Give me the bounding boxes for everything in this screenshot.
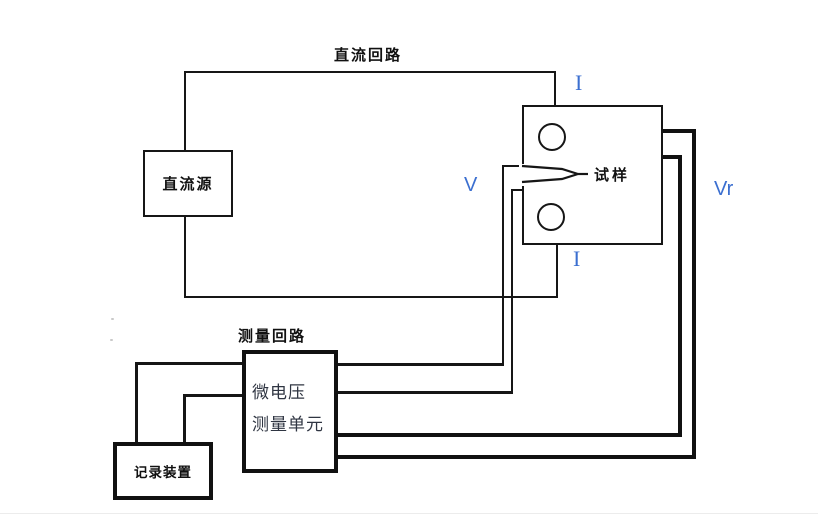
wire-vr-inner-to-unit (337, 433, 682, 437)
wire-vr-inner-vertical (678, 155, 682, 437)
wire-dc-source-bottom-vertical (184, 215, 186, 298)
specimen-label: 试样 (594, 164, 630, 185)
measure-loop-title: 测量回路 (238, 325, 306, 346)
wire-v-lower-probe-vertical (511, 189, 513, 394)
wire-vr-outer-to-unit (337, 455, 696, 459)
measurement-unit-label-line1: 微电压 (252, 378, 306, 403)
wire-recorder-lower-horizontal (183, 394, 242, 397)
current-label-bottom: I (573, 246, 580, 272)
current-label-top: I (575, 70, 582, 96)
measurement-unit-label-line2: 测量单元 (252, 410, 324, 435)
recorder-label: 记录装置 (134, 461, 192, 481)
wire-specimen-bottom-vertical (556, 243, 558, 298)
recorder-box: 记录装置 (113, 442, 213, 500)
scan-speck-2 (110, 339, 113, 341)
wire-v-upper-probe-vertical (502, 165, 504, 366)
voltage-reference-label: Vr (714, 178, 733, 201)
dc-loop-title: 直流回路 (334, 44, 402, 65)
wire-dc-source-top-vertical (184, 72, 186, 152)
specimen-crack-notch (512, 158, 596, 192)
wire-v-upper-probe-to-unit (338, 363, 504, 366)
scan-edge-shadow (0, 513, 818, 514)
dc-source-label: 直流源 (162, 173, 213, 194)
wire-dc-loop-right-down-to-specimen (554, 71, 556, 107)
specimen-lower-hole (537, 203, 565, 231)
specimen-upper-hole (538, 123, 566, 151)
wire-recorder-lower-vertical (183, 394, 186, 444)
dc-source-box: 直流源 (143, 150, 233, 217)
crack-measurement-circuit-diagram: 直流源 微电压 测量单元 记录装置 直流回路 测量回路 试样 I I V Vr (0, 0, 818, 524)
wire-vr-outer-vertical (692, 129, 696, 459)
voltage-probe-label: V (464, 174, 477, 197)
wire-recorder-upper-vertical (135, 362, 138, 444)
wire-recorder-upper-horizontal (135, 362, 242, 365)
wire-v-lower-probe-to-unit (338, 391, 513, 394)
scan-speck-1 (111, 318, 114, 320)
wire-vr-outer-stub (661, 129, 696, 133)
wire-dc-loop-top-horizontal (184, 71, 556, 73)
